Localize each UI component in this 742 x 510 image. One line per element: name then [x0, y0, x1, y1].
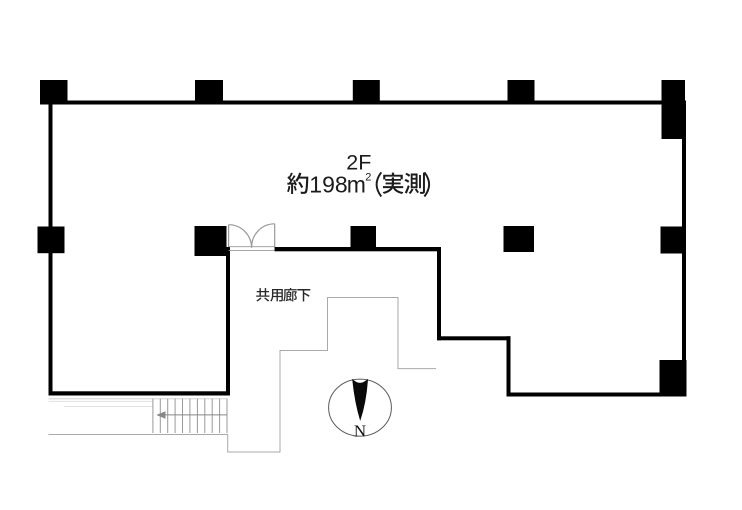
svg-text:m: m	[347, 171, 366, 197]
svg-text:N: N	[354, 422, 366, 441]
svg-text:2: 2	[365, 171, 371, 183]
svg-text:198: 198	[309, 171, 347, 197]
